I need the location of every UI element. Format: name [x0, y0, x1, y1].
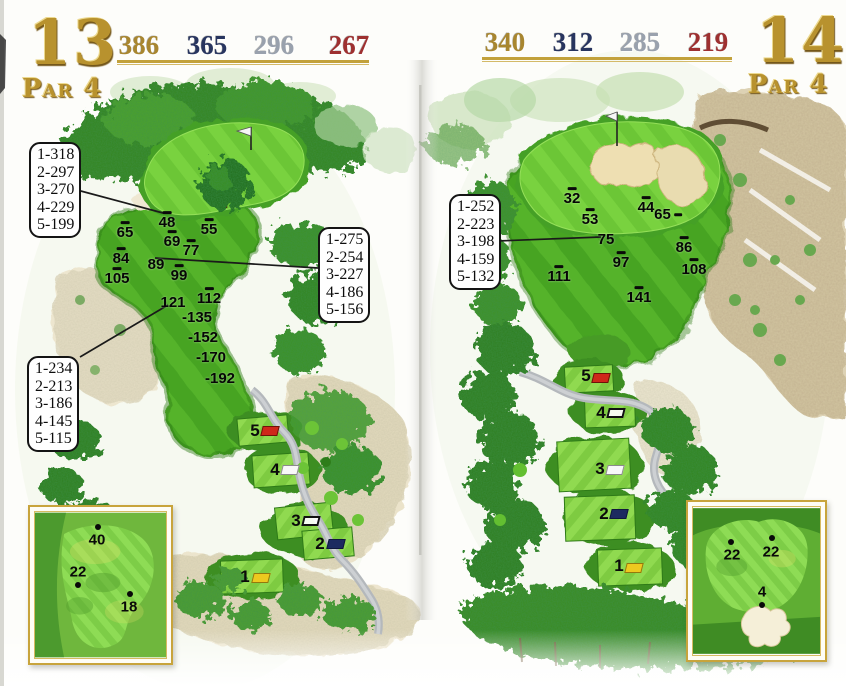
tee-number: 3 [291, 511, 300, 531]
tee-distance: 312 [553, 29, 594, 56]
yardage-marker: -152 [188, 330, 218, 345]
pin-distance: 40 [89, 532, 106, 549]
yardage-value: -170 [196, 350, 226, 365]
yardage-book-page: 13 Par 4 14 Par 4 [0, 0, 846, 686]
yardage-value: 112 [197, 291, 221, 306]
yardage-value: 105 [104, 271, 129, 286]
yardage-marker: -170 [196, 350, 226, 365]
yardage-marker: 55 [201, 218, 218, 237]
yardage-marker: 44 [638, 196, 655, 215]
yardage-marker: 141 [626, 286, 651, 305]
callout-line: 3-270 [37, 181, 74, 199]
yardage-value: 86 [676, 240, 693, 255]
yardage-marker: 97 [613, 251, 630, 270]
pin-distance: 22 [70, 564, 87, 581]
tee-marker-yellow [624, 563, 643, 573]
yardage-marker: 65 [117, 221, 134, 240]
yardage-value: 89 [148, 257, 165, 272]
tee-distance: 267 [329, 32, 370, 59]
pin-distance: 4 [758, 584, 766, 601]
pin-dot [769, 535, 775, 541]
green-inset-13 [28, 505, 173, 665]
yardage-marker: 99 [171, 264, 188, 283]
callout-line: 5-199 [37, 216, 74, 234]
yardage-marker: 111 [547, 265, 570, 284]
yardage-marker: 105 [104, 267, 129, 286]
tee-marker-white [280, 465, 299, 475]
pin-dot [95, 524, 101, 530]
callout-line: 4-229 [37, 199, 74, 217]
tee-number: 4 [270, 460, 279, 480]
yardage-marker: 121 [160, 295, 185, 310]
yardage-marker: -135 [182, 310, 212, 325]
tee-distance: 296 [254, 32, 295, 59]
green-inset-14-art [692, 506, 821, 656]
tee-marker-white [605, 465, 624, 475]
tee-distance-underline [482, 57, 732, 62]
yardage-value: 99 [171, 268, 188, 283]
yardage-value: 77 [183, 243, 200, 258]
yardage-value: 75 [598, 232, 615, 247]
callout-line: 1-318 [37, 146, 74, 164]
target-dash [674, 213, 682, 216]
yardage-value: 32 [564, 191, 581, 206]
annotation-overlay: 13 Par 4 14 Par 4 [0, 0, 846, 686]
tee-marker-navy [326, 539, 345, 549]
yardage-marker: 77 [183, 239, 200, 258]
tee-marker-red [260, 426, 279, 436]
yardage-callout-box: 1-2342-2133-1864-1455-115 [27, 356, 79, 452]
tee-number: 5 [581, 366, 590, 386]
callout-line: 4-159 [457, 251, 494, 269]
yardage-marker: 89 [148, 257, 165, 272]
callout-line: 2-254 [326, 249, 363, 267]
yardage-marker: 84 [113, 247, 130, 266]
callout-line: 4-145 [35, 413, 72, 431]
yardage-marker: 112 [197, 287, 221, 306]
yardage-value: 108 [681, 262, 706, 277]
tee-number: 2 [599, 504, 608, 524]
yardage-value: -135 [182, 310, 212, 325]
callout-line: 3-186 [35, 395, 72, 413]
tee-number: 1 [614, 556, 623, 576]
tee-marker-red [591, 373, 610, 383]
yardage-marker: 32 [564, 187, 581, 206]
yardage-marker: 75 [598, 232, 615, 247]
tee-marker-outline [606, 408, 625, 418]
callout-line: 1-275 [326, 231, 363, 249]
yardage-value: 69 [164, 234, 181, 249]
tee-marker-yellow [251, 573, 270, 583]
callout-line: 5-115 [35, 430, 72, 448]
tee-distance: 285 [620, 29, 661, 56]
yardage-value: 111 [547, 269, 570, 284]
yardage-marker: 69 [164, 230, 181, 249]
yardage-value: 55 [201, 222, 218, 237]
yardage-value: 53 [582, 212, 599, 227]
callout-line: 2-213 [35, 378, 72, 396]
yardage-marker: 53 [582, 208, 599, 227]
pin-dot [75, 582, 81, 588]
callout-line: 5-132 [457, 268, 494, 286]
pin-dot [728, 539, 734, 545]
tee-distance: 386 [119, 32, 160, 59]
callout-line: 2-297 [37, 164, 74, 182]
yardage-value: 65 [117, 225, 134, 240]
callout-line: 3-198 [457, 233, 494, 251]
tee-marker-outline [301, 516, 320, 526]
yardage-value: 84 [113, 251, 130, 266]
yardage-value: 65 [654, 207, 671, 222]
yardage-value: -192 [205, 371, 235, 386]
tee-number: 2 [315, 534, 324, 554]
tee-number: 3 [595, 459, 604, 479]
yardage-callout-box: 1-2522-2233-1984-1595-132 [449, 194, 501, 290]
yardage-value: 44 [638, 200, 655, 215]
callout-line: 4-186 [326, 284, 363, 302]
yardage-marker: 48 [159, 211, 176, 230]
pin-distance: 22 [763, 544, 780, 561]
tee-number: 4 [596, 403, 605, 423]
pin-dot [127, 591, 133, 597]
tee-marker-navy [609, 509, 628, 519]
tee-distance: 365 [187, 32, 228, 59]
yardage-marker: 86 [676, 236, 693, 255]
yardage-marker: 108 [681, 258, 706, 277]
yardage-callout-box: 1-3182-2973-2704-2295-199 [29, 142, 81, 238]
yardage-value: 141 [626, 290, 651, 305]
yardage-marker: -192 [205, 371, 235, 386]
callout-line: 5-156 [326, 301, 363, 319]
pin-distance: 22 [724, 547, 741, 564]
callout-line: 3-227 [326, 266, 363, 284]
tee-distance-underline [117, 60, 369, 65]
pin-dot [759, 602, 765, 608]
tee-distance: 340 [485, 29, 526, 56]
yardage-callout-box: 1-2752-2543-2274-1865-156 [318, 227, 370, 323]
tee-number: 1 [240, 567, 249, 587]
yardage-marker: 65 [654, 207, 682, 222]
yardage-value: 48 [159, 215, 176, 230]
tee-number: 5 [250, 421, 259, 441]
pin-distance: 18 [121, 599, 138, 616]
tee-distance: 219 [688, 29, 729, 56]
green-inset-14 [686, 500, 827, 662]
yardage-value: 121 [160, 295, 185, 310]
yardage-value: 97 [613, 255, 630, 270]
callout-line: 1-252 [457, 198, 494, 216]
callout-line: 2-223 [457, 216, 494, 234]
callout-line: 1-234 [35, 360, 72, 378]
yardage-value: -152 [188, 330, 218, 345]
